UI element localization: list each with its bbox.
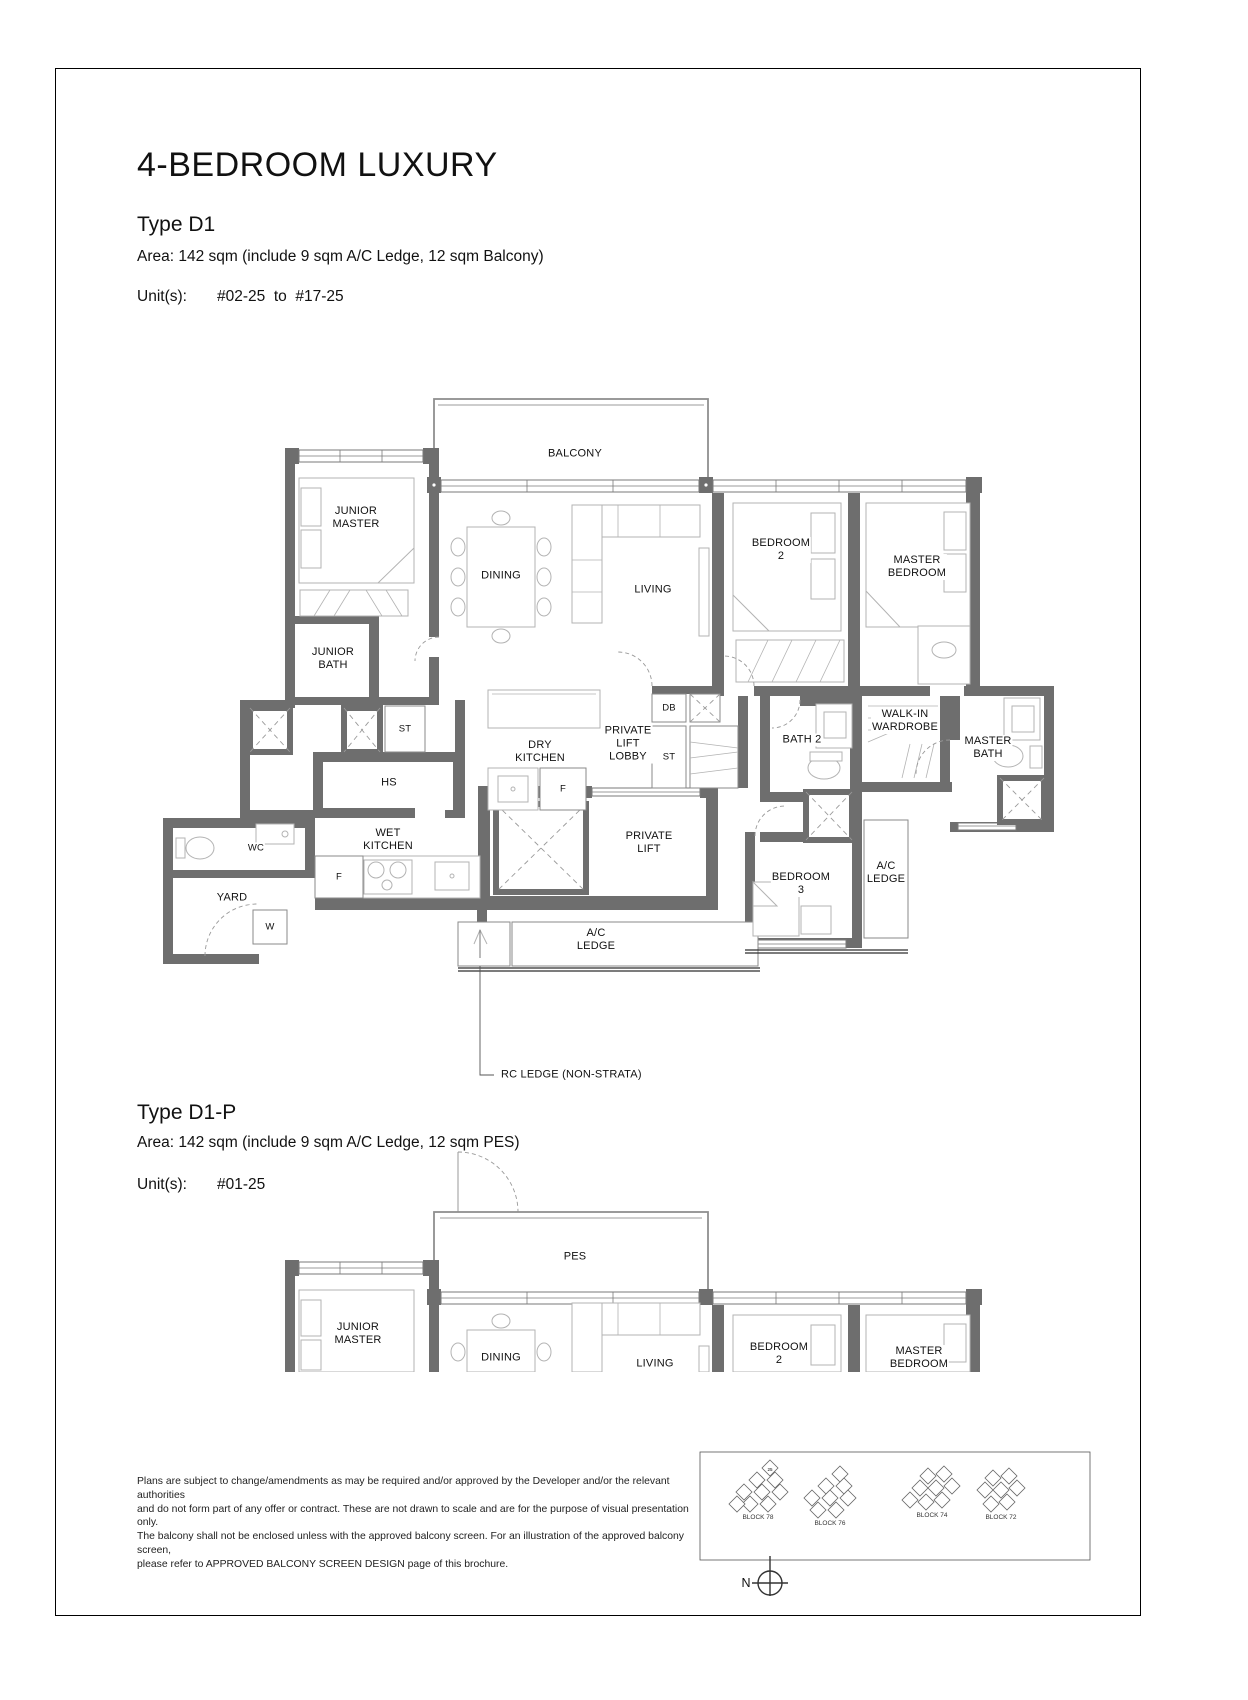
key-plan-label-block-74: BLOCK 74 (916, 1512, 947, 1519)
room-label-bedroom-2: BEDROOM 2 (751, 537, 811, 563)
type-d1-units: Unit(s): #02-25 to #17-25 (137, 288, 344, 306)
room-label-junior-master-p: JUNIOR MASTER (333, 1321, 382, 1347)
room-label-private-lift: PRIVATE LIFT (625, 830, 674, 856)
room-label-db: DB (661, 702, 677, 713)
key-plan-block-78: 25 (729, 1460, 788, 1512)
room-label-hs: HS (380, 777, 398, 790)
room-label-balcony: BALCONY (547, 448, 603, 461)
room-label-dining-p: DINING (480, 1352, 522, 1365)
key-plan-block-76 (804, 1466, 856, 1518)
appliance-label-fridge-wet: F (335, 871, 343, 882)
room-label-master-bedroom: MASTER BEDROOM (887, 554, 947, 580)
key-plan-drawing: 25 (690, 1440, 1100, 1610)
type-d1-units-label: Unit(s): (137, 288, 187, 306)
room-label-wc: WC (247, 842, 265, 853)
type-d1-units-value: #02-25 to #17-25 (217, 288, 344, 306)
room-label-master-bath: MASTER BATH (963, 735, 1012, 761)
key-plan-unit-number: 25 (767, 1467, 773, 1472)
appliance-label-washer: W (264, 921, 275, 932)
type-d1-area: Area: 142 sqm (include 9 sqm A/C Ledge, … (137, 248, 544, 266)
room-label-pes: PES (563, 1251, 588, 1264)
disclaimer-text: Plans are subject to change/amendments a… (137, 1475, 697, 1572)
floorplan-d1p-drawing (160, 1080, 1060, 1372)
room-label-ac-ledge-right: A/C LEDGE (866, 860, 906, 886)
room-label-wet-kitchen: WET KITCHEN (362, 827, 414, 853)
key-plan-block-72 (977, 1468, 1025, 1512)
key-plan-label-block-78: BLOCK 78 (742, 1514, 773, 1521)
room-label-living-p: LIVING (635, 1358, 674, 1371)
type-d1-name: Type D1 (137, 213, 215, 237)
key-plan-block-74 (902, 1466, 960, 1510)
key-plan-label-block-76: BLOCK 76 (814, 1520, 845, 1527)
room-label-yard: YARD (216, 892, 249, 905)
room-label-bath-2: BATH 2 (782, 734, 823, 747)
room-label-dining: DINING (480, 570, 522, 583)
key-plan-border (700, 1452, 1090, 1560)
balcony-outline (434, 399, 708, 487)
pes-outline (434, 1152, 708, 1296)
room-label-master-bedroom-p: MASTER BEDROOM (889, 1345, 949, 1371)
room-label-private-lift-lobby: PRIVATE LIFT LOBBY (604, 725, 653, 764)
room-label-dry-kitchen: DRY KITCHEN (514, 739, 566, 765)
north-compass-icon (752, 1556, 788, 1596)
room-label-junior-bath: JUNIOR BATH (311, 646, 355, 672)
room-label-st-upper: ST (398, 723, 413, 734)
appliance-label-fridge-dry: F (559, 783, 567, 794)
page-title: 4-BEDROOM LUXURY (137, 146, 498, 185)
key-plan-label-block-72: BLOCK 72 (985, 1514, 1016, 1521)
brochure-page: 4-BEDROOM LUXURY Type D1 Area: 142 sqm (… (0, 0, 1248, 1700)
room-label-walk-in-wardrobe: WALK-IN WARDROBE (871, 708, 939, 734)
north-label: N (741, 1576, 750, 1590)
room-label-living: LIVING (633, 584, 672, 597)
room-label-bedroom-3: BEDROOM 3 (771, 871, 831, 897)
room-label-st-lobby: ST (662, 751, 677, 762)
room-label-ac-ledge-bottom: A/C LEDGE (576, 927, 616, 953)
room-label-bedroom-2-p: BEDROOM 2 (749, 1341, 809, 1367)
room-label-junior-master: JUNIOR MASTER (331, 505, 380, 531)
